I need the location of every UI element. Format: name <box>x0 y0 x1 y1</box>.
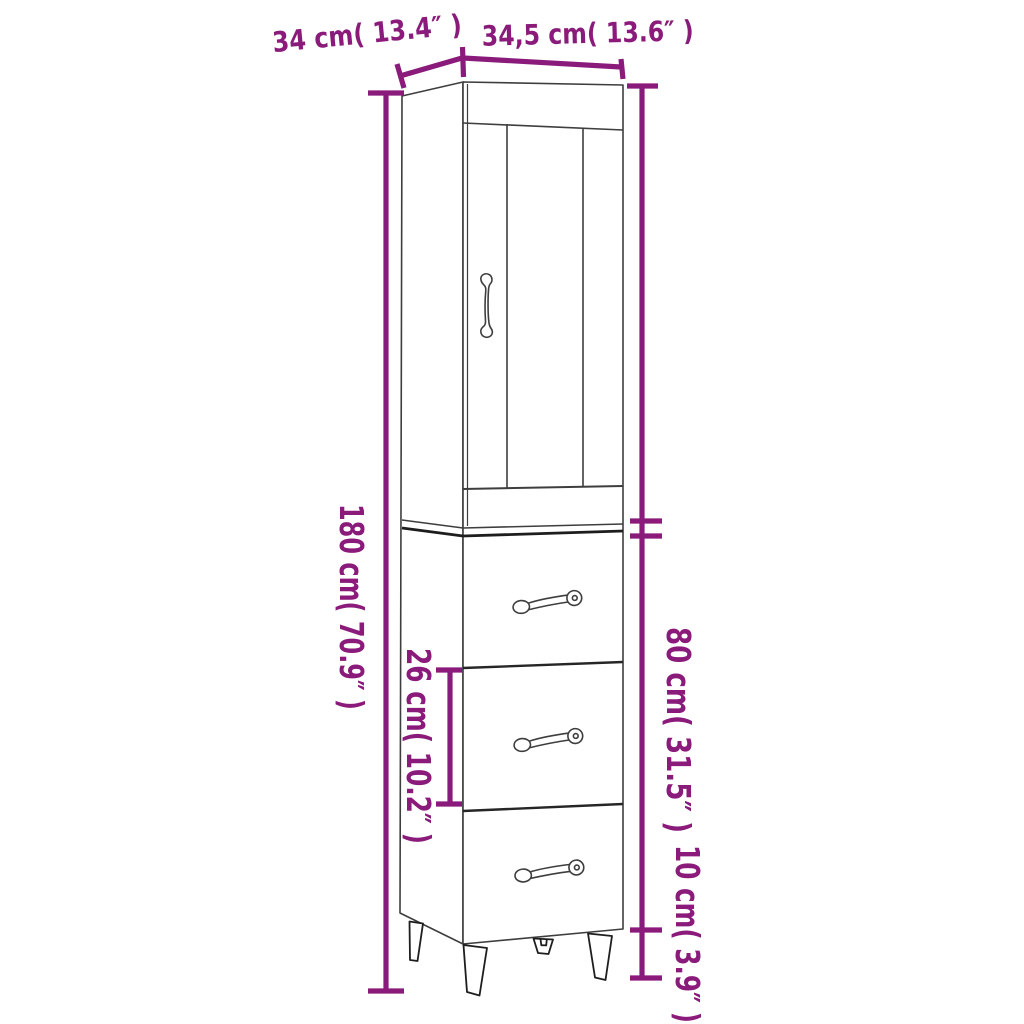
dimension-line-lower-and-legs <box>627 86 662 978</box>
dimension-label-top-depth: 34 cm( 13.4″ ) <box>271 8 463 59</box>
dimension-diagram: 34 cm( 13.4″ ) 34,5 cm( 13.6″ ) 180 cm( … <box>0 0 1024 1024</box>
dimension-label-drawer-spacing: 26 cm( 10.2″ ) <box>399 648 438 844</box>
dimension-label-total-height: 180 cm( 70.9″ ) <box>332 504 371 710</box>
dimension-label-lower-section: 80 cm( 31.5″ ) <box>659 627 698 833</box>
cabinet-drawing <box>400 82 623 996</box>
cabinet-leg-back-left <box>410 922 424 962</box>
dimension-line-total-height <box>368 93 404 991</box>
dimension-label-top-width: 34,5 cm( 13.6″ ) <box>481 14 694 53</box>
diagram-svg: 34 cm( 13.4″ ) 34,5 cm( 13.6″ ) 180 cm( … <box>0 0 1024 1024</box>
cabinet-leg-back-right <box>534 939 554 955</box>
dimension-line-top-depth <box>397 58 462 88</box>
cabinet-leg-front-left <box>464 945 488 996</box>
dimension-label-leg-height: 10 cm( 3.9″ ) <box>668 845 707 1023</box>
cabinet-front-panel <box>463 82 623 944</box>
cabinet-leg-front-right <box>588 934 612 981</box>
